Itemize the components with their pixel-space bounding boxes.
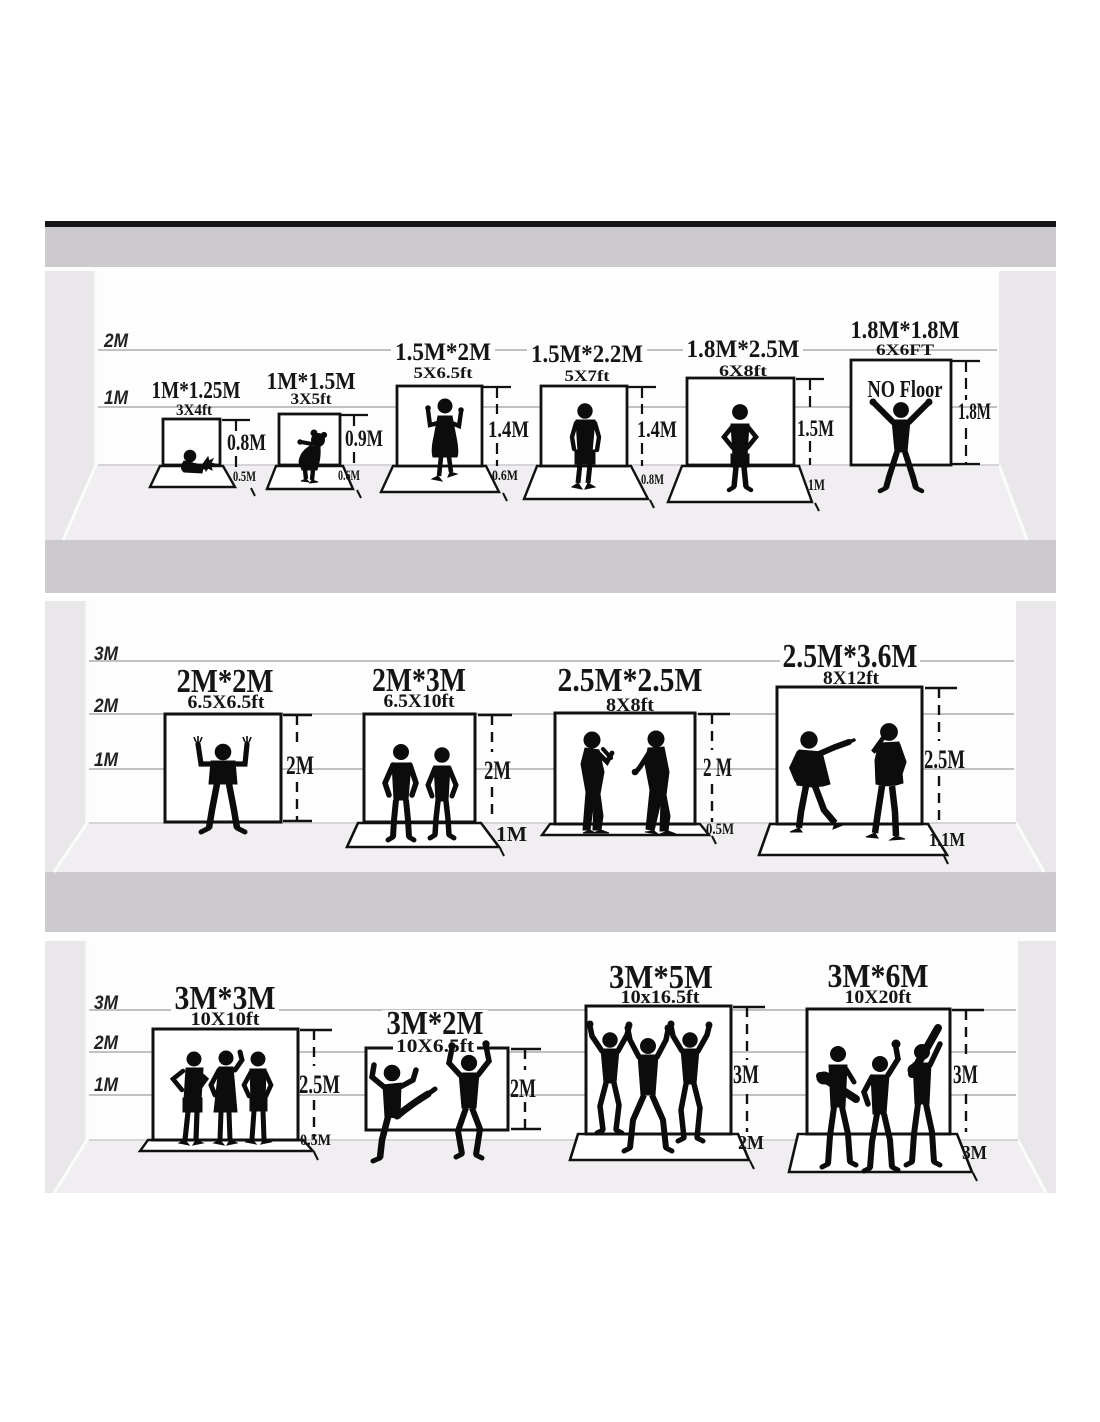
svg-text:1M: 1M (104, 388, 129, 409)
svg-text:1.4M: 1.4M (637, 417, 677, 442)
svg-text:10X6.5ft: 10X6.5ft (396, 1036, 475, 1057)
svg-text:3M: 3M (94, 644, 119, 665)
svg-text:2 M: 2 M (703, 753, 732, 782)
svg-text:3X4ft: 3X4ft (176, 402, 213, 419)
svg-text:1M*1.25M: 1M*1.25M (152, 378, 241, 404)
svg-text:2M: 2M (93, 1033, 119, 1054)
svg-text:1.8M*2.5M: 1.8M*2.5M (687, 336, 800, 363)
svg-text:3M: 3M (94, 993, 119, 1014)
svg-text:2M: 2M (93, 696, 119, 717)
svg-text:1M: 1M (94, 1075, 119, 1096)
svg-text:0.5M: 0.5M (300, 1132, 331, 1149)
svg-text:1M: 1M (94, 750, 119, 771)
svg-text:1.8M*1.8M: 1.8M*1.8M (851, 317, 960, 344)
svg-text:1.1M: 1.1M (929, 829, 965, 851)
svg-text:3X5ft: 3X5ft (291, 391, 333, 408)
svg-text:1.4M: 1.4M (488, 417, 529, 442)
svg-text:2M: 2M (484, 756, 511, 785)
svg-text:1M: 1M (496, 822, 527, 846)
svg-text:6.5X6.5ft: 6.5X6.5ft (188, 692, 266, 713)
svg-text:0.9M: 0.9M (345, 426, 383, 451)
svg-text:1.5M*2.2M: 1.5M*2.2M (531, 341, 643, 368)
svg-text:1.5M: 1.5M (797, 416, 834, 441)
svg-text:10X20ft: 10X20ft (845, 987, 913, 1008)
svg-text:6.5X10ft: 6.5X10ft (384, 691, 456, 712)
svg-text:2.5M: 2.5M (299, 1070, 340, 1099)
svg-text:3M: 3M (953, 1060, 978, 1089)
svg-text:2.5M*2.5M: 2.5M*2.5M (558, 662, 703, 699)
svg-text:2.5M: 2.5M (924, 745, 965, 774)
svg-text:2M: 2M (738, 1132, 764, 1154)
svg-text:5X6.5ft: 5X6.5ft (414, 365, 474, 382)
svg-text:NO Floor: NO Floor (868, 377, 943, 403)
svg-text:0.8M: 0.8M (227, 430, 266, 455)
svg-text:10X10ft: 10X10ft (191, 1009, 261, 1030)
svg-text:3M: 3M (733, 1060, 759, 1089)
svg-text:0.6M: 0.6M (338, 468, 360, 484)
svg-text:0.5M: 0.5M (233, 469, 256, 485)
svg-text:2M: 2M (286, 751, 314, 780)
svg-text:3M: 3M (962, 1142, 987, 1164)
svg-text:2M: 2M (103, 331, 129, 352)
svg-text:6X6FT: 6X6FT (876, 342, 934, 359)
svg-text:2M: 2M (510, 1074, 536, 1103)
svg-text:0.8M: 0.8M (641, 472, 664, 488)
svg-text:1M: 1M (808, 477, 825, 494)
svg-text:5X7ft: 5X7ft (565, 368, 611, 385)
svg-text:1.8M: 1.8M (958, 399, 991, 424)
svg-text:0.5M: 0.5M (706, 821, 734, 838)
svg-text:1.5M*2M: 1.5M*2M (395, 339, 491, 366)
svg-text:0.6M: 0.6M (492, 468, 518, 484)
